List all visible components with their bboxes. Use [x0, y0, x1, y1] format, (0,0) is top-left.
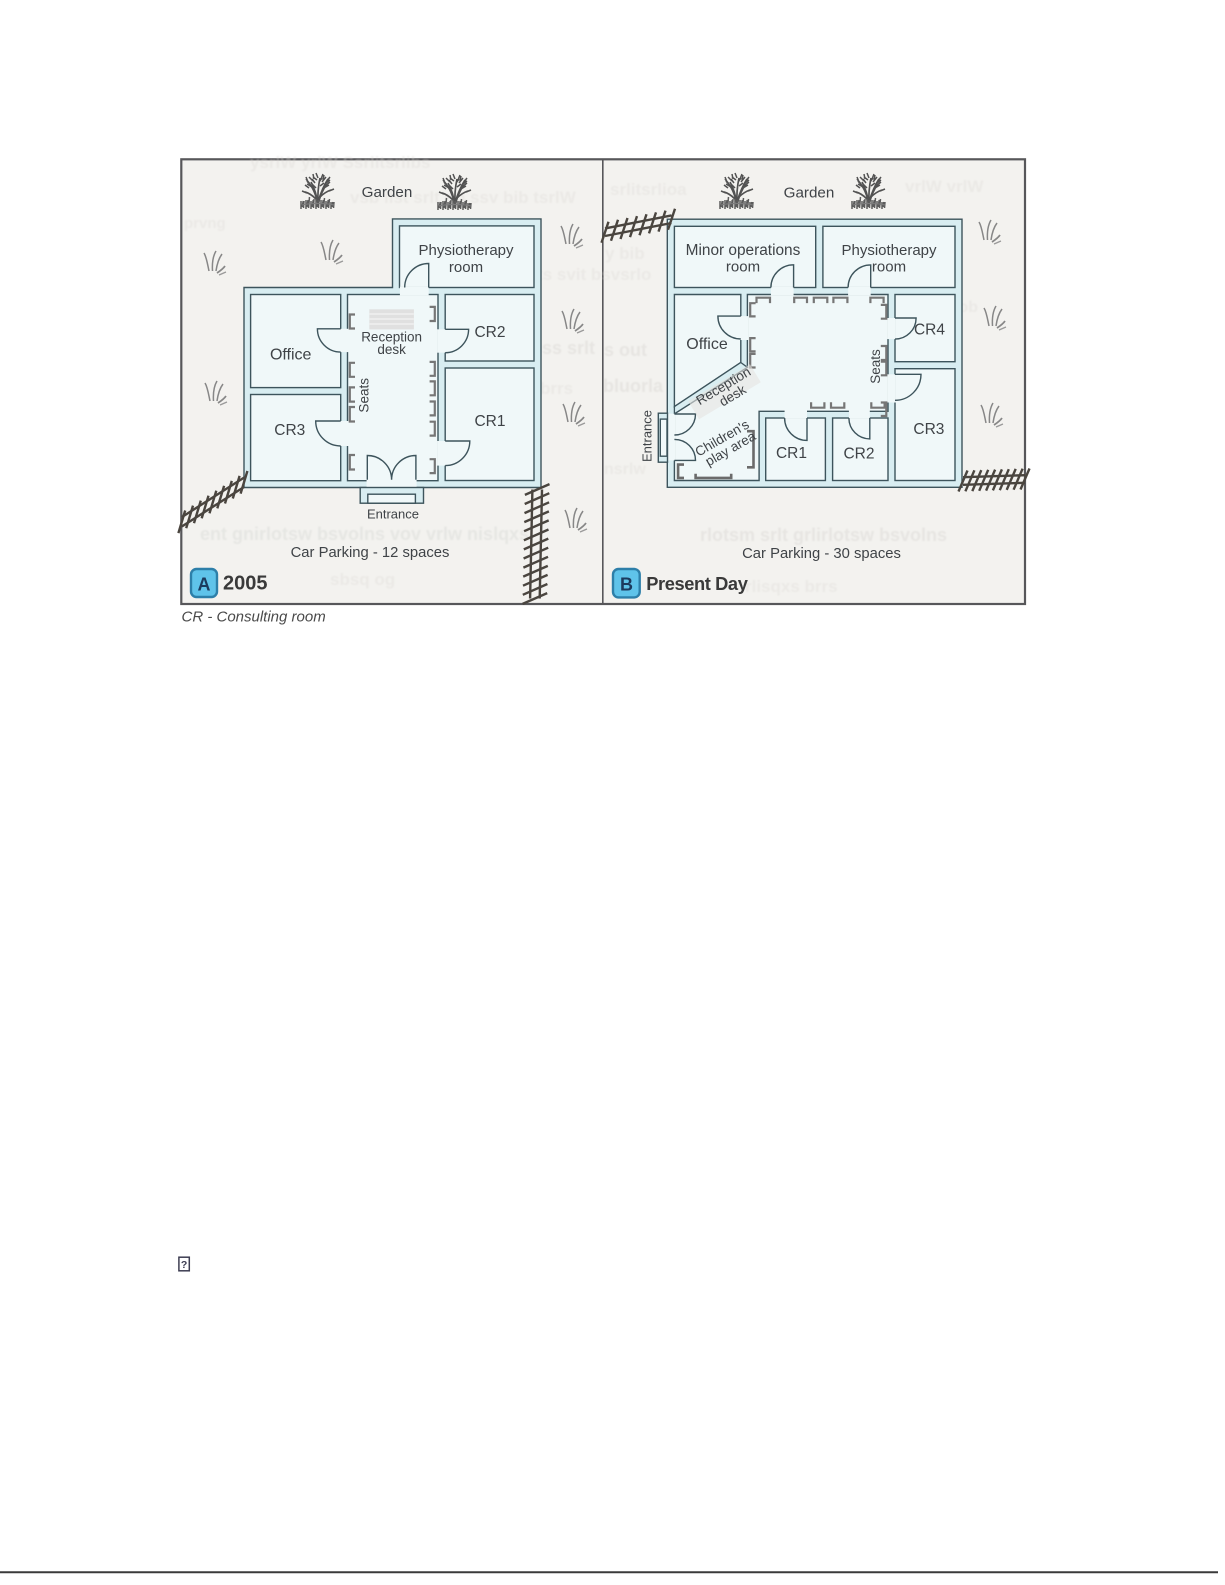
svg-text:2005: 2005	[223, 573, 268, 595]
svg-text:Car Parking - 12 spaces: Car Parking - 12 spaces	[291, 545, 450, 561]
svg-text:Office: Office	[686, 336, 728, 353]
svg-text:room: room	[872, 259, 906, 276]
svg-text:ent gnirlotsw bsvolns vov vrlw: ent gnirlotsw bsvolns vov vrlw nislqxs	[200, 524, 529, 544]
svg-text:Seats: Seats	[356, 378, 371, 413]
svg-text:CR4: CR4	[914, 322, 945, 339]
svg-text:desk: desk	[377, 342, 406, 357]
svg-text:Office: Office	[270, 347, 312, 364]
svg-text:ysrlW yrlW Ssrlitsrlibs: ysrlW yrlW Ssrlitsrlibs	[250, 153, 430, 172]
svg-text:CR1: CR1	[776, 445, 807, 462]
svg-text:vrlW vrlW: vrlW vrlW	[905, 177, 984, 196]
svg-text:CR3: CR3	[913, 421, 944, 438]
svg-text:Present Day: Present Day	[646, 573, 749, 594]
svg-text:A: A	[198, 575, 211, 595]
svg-text:y bib: y bib	[605, 244, 645, 263]
svg-text:rlisqxs brrs: rlisqxs brrs	[745, 577, 838, 596]
svg-text:room: room	[449, 259, 483, 276]
svg-text:room: room	[726, 259, 760, 276]
svg-text:bluorla: bluorla	[603, 376, 664, 396]
svg-text:s out: s out	[604, 340, 647, 360]
svg-text:rlotsm srlt grlirlotsw bsvolns: rlotsm srlt grlirlotsw bsvolns	[700, 525, 947, 545]
svg-text:CR - Consulting room: CR - Consulting room	[182, 609, 326, 626]
svg-text:Garden: Garden	[784, 185, 835, 202]
svg-text:Garden: Garden	[362, 184, 413, 201]
svg-text:CR2: CR2	[843, 446, 874, 463]
svg-text:sbsq og: sbsq og	[330, 570, 395, 589]
svg-text:CR3: CR3	[274, 422, 305, 439]
svg-text:Entrance: Entrance	[640, 410, 655, 462]
svg-text:?: ?	[181, 1259, 187, 1271]
svg-text:prvng: prvng	[184, 215, 226, 232]
svg-text:CR1: CR1	[474, 413, 505, 430]
svg-text:nsrlw: nsrlw	[604, 461, 646, 478]
svg-text:Physiotherapy: Physiotherapy	[418, 242, 514, 259]
svg-text:Minor operations: Minor operations	[686, 242, 801, 259]
svg-text:Entrance: Entrance	[367, 507, 419, 522]
svg-text:Seats: Seats	[868, 349, 883, 384]
svg-text:brrs: brrs	[540, 379, 573, 398]
svg-text:srlitsrlioa: srlitsrlioa	[610, 180, 687, 199]
svg-text:Car Parking - 30 spaces: Car Parking - 30 spaces	[742, 546, 901, 562]
svg-text:Physiotherapy: Physiotherapy	[841, 242, 937, 259]
svg-text:B: B	[620, 575, 633, 595]
svg-text:CR2: CR2	[474, 324, 505, 341]
